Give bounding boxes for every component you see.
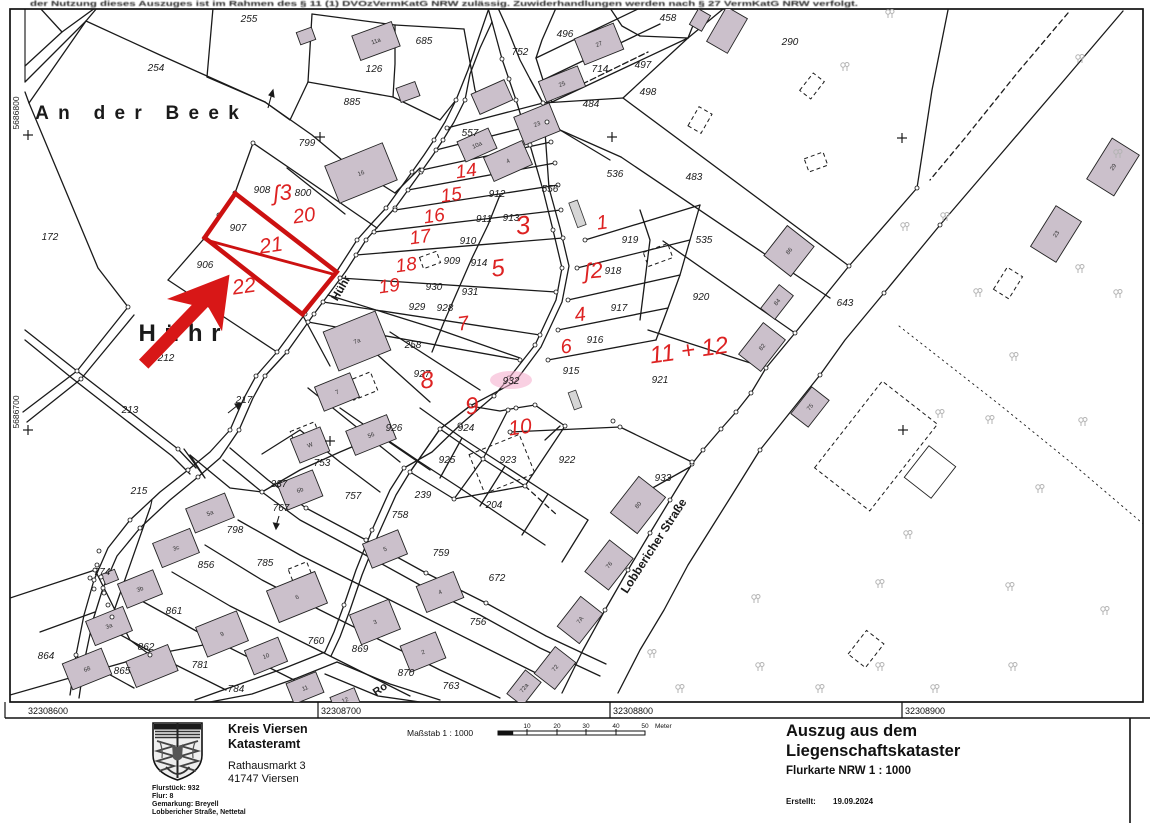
- svg-text:914: 914: [471, 258, 488, 269]
- svg-text:865: 865: [114, 666, 131, 677]
- svg-text:760: 760: [308, 636, 325, 647]
- svg-text:213: 213: [121, 405, 139, 416]
- svg-text:32308700: 32308700: [321, 706, 361, 716]
- svg-text:536: 536: [607, 169, 624, 180]
- svg-text:50: 50: [641, 723, 649, 730]
- svg-text:255: 255: [240, 14, 258, 25]
- svg-text:753: 753: [314, 458, 331, 469]
- svg-text:556: 556: [542, 184, 559, 195]
- svg-text:774: 774: [94, 567, 111, 578]
- svg-text:929: 929: [409, 302, 426, 313]
- svg-text:932: 932: [503, 376, 520, 387]
- svg-text:911: 911: [476, 214, 492, 225]
- svg-text:Kreis Viersen: Kreis Viersen: [228, 722, 308, 736]
- svg-text:785: 785: [257, 558, 274, 569]
- svg-text:239: 239: [414, 490, 432, 501]
- svg-text:Flur: 8: Flur: 8: [152, 793, 173, 800]
- svg-text:10: 10: [507, 415, 534, 441]
- svg-text:672: 672: [489, 573, 506, 584]
- svg-text:Erstellt:: Erstellt:: [786, 797, 816, 806]
- svg-text:19.09.2024: 19.09.2024: [833, 797, 874, 806]
- svg-text:172: 172: [42, 232, 59, 243]
- svg-text:14: 14: [454, 160, 478, 184]
- svg-text:862: 862: [138, 642, 155, 653]
- svg-text:799: 799: [299, 138, 316, 149]
- svg-text:Lobbericher Straße, Nettetal: Lobbericher Straße, Nettetal: [152, 809, 246, 816]
- svg-text:864: 864: [38, 651, 55, 662]
- svg-text:204: 204: [485, 500, 503, 511]
- svg-text:920: 920: [693, 292, 710, 303]
- svg-text:907: 907: [230, 223, 247, 234]
- svg-text:757: 757: [345, 491, 362, 502]
- svg-text:22: 22: [230, 274, 258, 300]
- svg-text:759: 759: [433, 548, 450, 559]
- svg-text:758: 758: [392, 510, 409, 521]
- svg-text:30: 30: [582, 723, 590, 730]
- svg-text:930: 930: [426, 282, 443, 293]
- svg-text:5686800: 5686800: [11, 96, 21, 129]
- svg-text:20: 20: [553, 723, 561, 730]
- svg-text:290: 290: [781, 37, 799, 48]
- svg-text:916: 916: [587, 335, 604, 346]
- svg-text:923: 923: [500, 455, 517, 466]
- svg-text:870: 870: [398, 668, 415, 679]
- svg-text:32308600: 32308600: [28, 706, 68, 716]
- svg-text:909: 909: [444, 256, 461, 267]
- svg-text:10: 10: [523, 723, 531, 730]
- svg-text:40: 40: [612, 723, 620, 730]
- svg-text:Auszug aus dem: Auszug aus dem: [786, 722, 917, 740]
- svg-text:496: 496: [557, 29, 574, 40]
- svg-text:922: 922: [559, 455, 576, 466]
- svg-text:781: 781: [192, 660, 209, 671]
- svg-text:910: 910: [460, 236, 477, 247]
- svg-text:483: 483: [686, 172, 703, 183]
- svg-text:Flurkarte NRW 1 : 1000: Flurkarte NRW 1 : 1000: [786, 765, 911, 777]
- svg-text:der Nutzung dieses Auszuges is: der Nutzung dieses Auszuges ist im Rahme…: [30, 1, 858, 8]
- svg-text:885: 885: [344, 97, 361, 108]
- svg-text:798: 798: [227, 525, 244, 536]
- svg-text:917: 917: [611, 303, 628, 314]
- svg-text:784: 784: [228, 684, 245, 695]
- svg-text:915: 915: [563, 366, 580, 377]
- svg-text:Gemarkung: Breyell: Gemarkung: Breyell: [152, 801, 219, 808]
- svg-text:126: 126: [366, 64, 383, 75]
- svg-text:5686700: 5686700: [11, 395, 21, 428]
- svg-text:924: 924: [458, 423, 475, 434]
- svg-text:752: 752: [512, 47, 529, 58]
- svg-text:861: 861: [166, 606, 183, 617]
- svg-text:714: 714: [592, 64, 609, 75]
- svg-text:928: 928: [437, 303, 454, 314]
- svg-text:869: 869: [352, 644, 369, 655]
- svg-text:557: 557: [462, 128, 479, 139]
- svg-text:A n d e r B e e k: A n d e r B e e k: [35, 103, 241, 124]
- svg-text:32308800: 32308800: [613, 706, 653, 716]
- svg-text:16: 16: [422, 205, 446, 229]
- svg-text:237: 237: [270, 479, 288, 490]
- svg-text:41747 Viersen: 41747 Viersen: [228, 773, 299, 785]
- svg-text:258: 258: [404, 340, 422, 351]
- svg-text:21: 21: [257, 233, 284, 259]
- svg-text:Liegenschaftskataster: Liegenschaftskataster: [786, 742, 961, 760]
- svg-text:Maßstab 1 : 1000: Maßstab 1 : 1000: [407, 728, 473, 738]
- svg-text:484: 484: [583, 99, 600, 110]
- svg-text:908: 908: [254, 185, 271, 196]
- svg-text:856: 856: [198, 560, 215, 571]
- svg-text:535: 535: [696, 235, 713, 246]
- svg-text:Flurstück: 932: Flurstück: 932: [152, 785, 200, 792]
- svg-text:685: 685: [416, 36, 433, 47]
- svg-text:254: 254: [147, 63, 165, 74]
- svg-text:767: 767: [273, 503, 290, 514]
- svg-text:20: 20: [291, 204, 317, 229]
- svg-text:933: 933: [655, 473, 672, 484]
- svg-text:497: 497: [635, 60, 652, 71]
- svg-text:763: 763: [443, 681, 460, 692]
- svg-text:931: 931: [462, 287, 479, 298]
- svg-text:32308900: 32308900: [905, 706, 945, 716]
- svg-text:Rathausmarkt 3: Rathausmarkt 3: [228, 760, 306, 772]
- svg-text:800: 800: [295, 188, 312, 199]
- svg-text:217: 217: [235, 395, 253, 406]
- svg-text:918: 918: [605, 266, 622, 277]
- svg-text:215: 215: [130, 486, 148, 497]
- svg-text:921: 921: [652, 375, 669, 386]
- svg-text:Meter: Meter: [655, 723, 672, 730]
- svg-text:643: 643: [837, 298, 854, 309]
- svg-text:906: 906: [197, 260, 214, 271]
- svg-text:925: 925: [439, 455, 456, 466]
- svg-text:926: 926: [386, 423, 403, 434]
- svg-text:919: 919: [622, 235, 639, 246]
- svg-text:498: 498: [640, 87, 657, 98]
- svg-text:Katasteramt: Katasteramt: [228, 737, 301, 751]
- svg-text:756: 756: [470, 617, 487, 628]
- svg-text:912: 912: [489, 189, 506, 200]
- svg-text:458: 458: [660, 13, 677, 24]
- svg-text:19: 19: [377, 275, 401, 299]
